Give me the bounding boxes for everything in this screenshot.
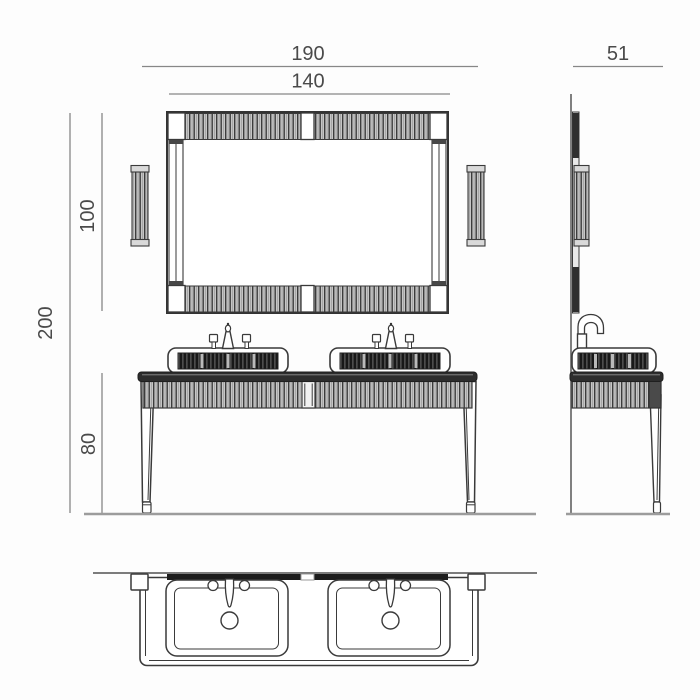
- mirror-center-block-bottom: [301, 286, 314, 313]
- mirror-bottom-flute-right: [314, 286, 430, 312]
- gooseneck-spout: [578, 315, 604, 335]
- mirror-rail-joint: [432, 140, 446, 144]
- dimension-depth: 51: [573, 43, 663, 67]
- backsplash-center-joint: [301, 574, 314, 580]
- dimension-overall-width: 190: [142, 43, 478, 67]
- technical-drawing-page: 190 140 51 100 200 80: [0, 0, 700, 700]
- mirror-corner-block-top-left: [168, 113, 185, 140]
- leg-plan-right: [468, 574, 485, 590]
- mirror-rail-joint: [169, 281, 183, 285]
- console-apron-side: [572, 382, 661, 409]
- wall-sconce-right: [467, 166, 485, 247]
- console-countertop: [138, 372, 477, 382]
- dimension-overall-height: 200: [35, 113, 70, 513]
- mirror-corner-block-bottom-left: [168, 286, 185, 313]
- mirror-top-flute-left: [185, 114, 301, 140]
- console-leg-side: [650, 395, 661, 502]
- console-front: [138, 372, 477, 513]
- mirror-mount-bottom: [573, 267, 580, 312]
- mirror-top-flute-right: [314, 114, 430, 140]
- mirror-corner-block-top-right: [430, 113, 447, 140]
- plan-view: [93, 573, 537, 666]
- dim-label-mirror-width: 140: [291, 71, 324, 93]
- faucet-side-base: [578, 334, 587, 349]
- mirror-rail-joint: [169, 140, 183, 144]
- wall-sconce-left: [131, 166, 149, 247]
- dim-label-console-height: 80: [78, 433, 100, 455]
- dim-label-overall-height: 200: [35, 306, 57, 339]
- dim-label-mirror-height: 100: [77, 199, 99, 232]
- dimension-console-height: 80: [78, 373, 102, 513]
- leg-block-side: [649, 382, 661, 409]
- apron-center-stile: [302, 382, 315, 409]
- basin-side: [572, 348, 656, 373]
- mirror-mount-top: [573, 113, 580, 158]
- faucet-front-right: [373, 323, 414, 349]
- wall-sconce-side: [574, 166, 589, 247]
- mirror-corner-block-bottom-right: [430, 286, 447, 313]
- mirror-rail-joint: [432, 281, 446, 285]
- basin-front-right: [330, 348, 450, 373]
- console-side: [570, 372, 663, 513]
- leg-foot-left: [143, 502, 152, 513]
- basin-front-left: [168, 348, 288, 373]
- mirror-bottom-flute-left: [185, 286, 301, 312]
- mirror-center-block-top: [301, 113, 314, 140]
- dim-label-overall-width: 190: [291, 43, 324, 65]
- dim-label-depth: 51: [607, 43, 629, 65]
- faucet-front-left: [210, 323, 251, 349]
- mirror-front: [167, 112, 448, 313]
- dimension-mirror-height: 100: [77, 113, 102, 311]
- mirror-outer-frame: [167, 112, 448, 313]
- front-elevation-view: [84, 112, 536, 514]
- vanity-technical-drawing: 190 140 51 100 200 80: [0, 0, 700, 700]
- dimension-mirror-width: 140: [169, 71, 450, 95]
- faucet-side: [578, 315, 604, 350]
- countertop-side: [570, 372, 663, 382]
- leg-foot-right: [467, 502, 476, 513]
- side-elevation-view: [566, 94, 670, 514]
- leg-plan-left: [131, 574, 148, 590]
- leg-foot-side: [654, 502, 661, 513]
